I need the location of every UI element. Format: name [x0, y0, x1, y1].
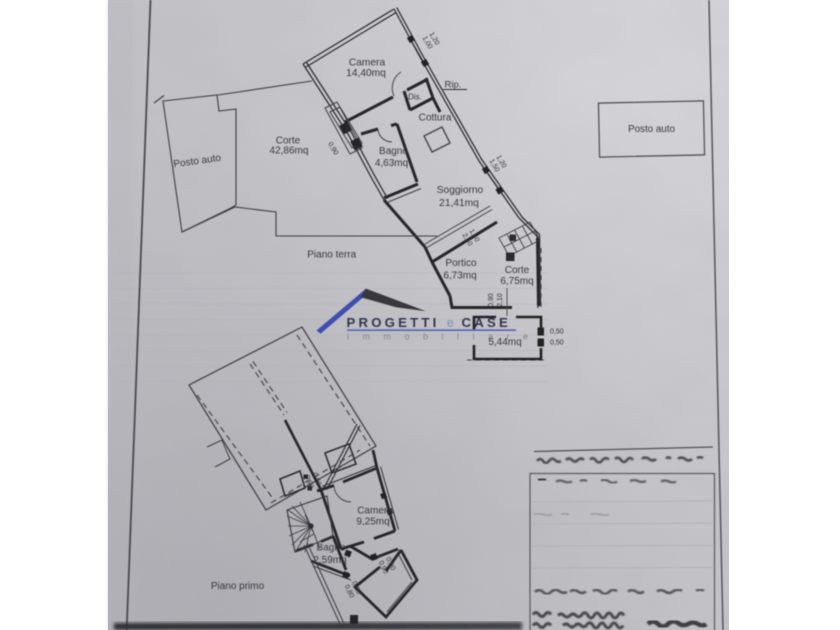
- svg-text:5,44mq: 5,44mq: [488, 337, 521, 348]
- svg-text:14,40mq: 14,40mq: [346, 68, 386, 79]
- svg-text:Camera: Camera: [349, 58, 386, 69]
- svg-text:4,63mq: 4,63mq: [375, 158, 408, 169]
- svg-text:Camera: Camera: [357, 506, 393, 517]
- svg-text:PROGETTI: PROGETTI: [347, 315, 440, 330]
- svg-text:21,41mq: 21,41mq: [439, 198, 479, 209]
- svg-text:Bagno: Bagno: [379, 146, 408, 157]
- svg-text:42,86mq: 42,86mq: [270, 146, 309, 157]
- svg-text:0,50: 0,50: [550, 340, 564, 347]
- svg-text:Soggiorno: Soggiorno: [437, 185, 484, 196]
- svg-text:0,50: 0,50: [550, 329, 564, 336]
- svg-text:Bagno: Bagno: [317, 543, 346, 554]
- svg-text:6,73mq: 6,73mq: [443, 271, 476, 282]
- svg-text:CASE: CASE: [462, 315, 511, 330]
- svg-text:Dis.: Dis.: [408, 93, 422, 102]
- svg-text:Cottura: Cottura: [419, 113, 452, 124]
- svg-text:2,59mq: 2,59mq: [313, 555, 346, 566]
- svg-text:Rip.: Rip.: [445, 80, 462, 91]
- svg-text:e: e: [447, 315, 454, 330]
- svg-text:Portico: Portico: [445, 258, 477, 269]
- svg-text:0,90: 0,90: [488, 293, 495, 307]
- svg-text:Posto auto: Posto auto: [628, 124, 675, 135]
- svg-text:9,25mq: 9,25mq: [356, 517, 389, 528]
- svg-text:Corte: Corte: [505, 265, 530, 276]
- svg-text:2,10: 2,10: [497, 293, 504, 307]
- svg-text:Piano terra: Piano terra: [307, 250, 356, 261]
- svg-text:Piano primo: Piano primo: [211, 581, 265, 592]
- svg-text:6,75mq: 6,75mq: [500, 276, 533, 287]
